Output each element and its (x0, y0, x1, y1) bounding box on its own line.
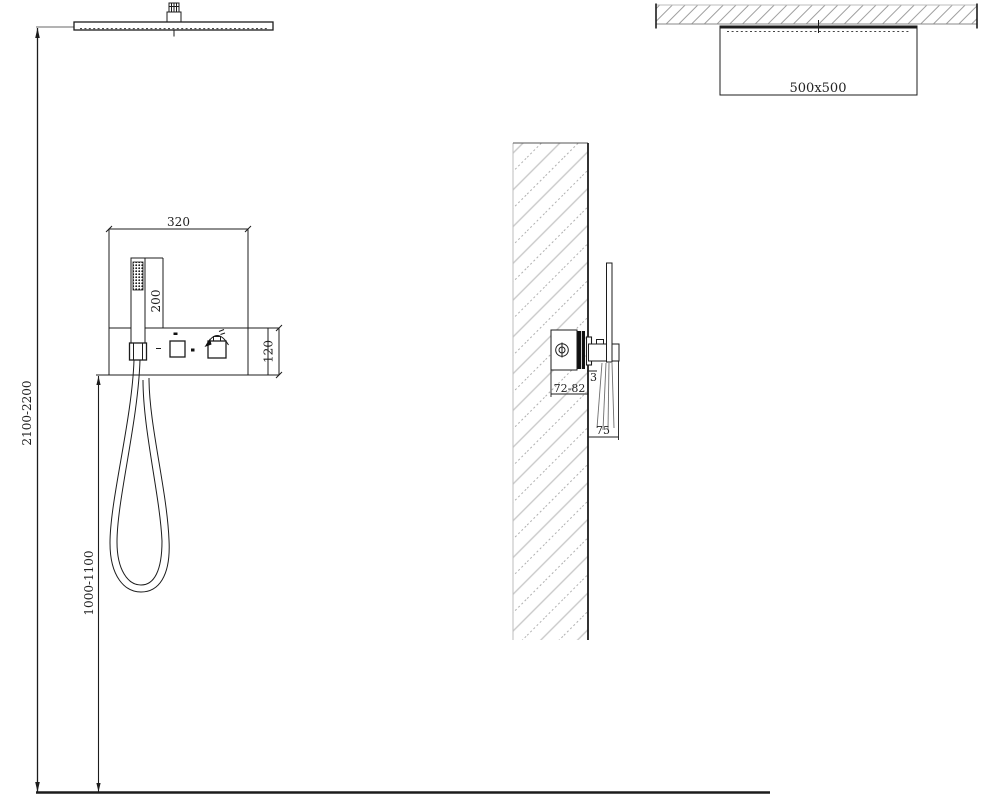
side-view: 3 72-82 75 (513, 143, 619, 640)
dim-panel-height-label: 120 (262, 340, 276, 363)
dim-panel-width-label: 320 (167, 215, 190, 229)
spray-face (133, 262, 143, 290)
holder-arm-side (589, 344, 620, 361)
shower-installation-drawing: 2100-2200 1000-1100 320 120 (0, 0, 1000, 800)
water-spray-lines (597, 363, 614, 430)
dim-recess-depth-label: 72-82 (554, 382, 586, 395)
arrowhead-bottom (96, 783, 100, 792)
dim-head-size-label: 500x500 (790, 81, 847, 96)
dim-holder-projection-label: 75 (596, 424, 610, 437)
ceiling-view: 500x500 (656, 4, 977, 97)
button-mark-top (174, 333, 178, 336)
knob-notch (214, 337, 221, 342)
button-mark-right (191, 349, 195, 352)
dim-ceiling-height (35, 28, 40, 792)
dim-hose-mount-height-label: 1000-1100 (82, 550, 96, 615)
valve-body (551, 330, 577, 370)
ceiling-mount-connector (167, 3, 181, 37)
hand-shower-side (589, 263, 620, 430)
arc-tick-1 (219, 330, 224, 332)
dim-plate-thickness-label: 3 (590, 371, 597, 384)
diverter-button (156, 333, 195, 358)
hand-shower-holder (130, 343, 147, 360)
dim-ceiling-height-label: 2100-2200 (20, 380, 34, 445)
arc-tick-2 (221, 333, 226, 335)
front-view: 2100-2200 1000-1100 320 120 (20, 3, 770, 793)
dim-panel-height (276, 325, 282, 378)
control-panel-front (96, 229, 279, 375)
arrowhead-top (96, 376, 100, 385)
arrowhead-bottom (35, 782, 40, 792)
temperature-knob (205, 330, 229, 359)
holder-bump (597, 340, 604, 345)
dim-hose-mount-height (96, 376, 100, 792)
wand-side (607, 263, 613, 362)
shower-hose-loop (110, 360, 169, 592)
rain-shower-head-front (36, 3, 273, 37)
arrowhead-top (35, 28, 40, 38)
ceiling-hatch (656, 5, 977, 24)
dim-hand-shower-length-label: 200 (149, 290, 163, 313)
ceiling-section (656, 4, 977, 29)
technical-drawing-page: 2100-2200 1000-1100 320 120 (0, 0, 1000, 800)
